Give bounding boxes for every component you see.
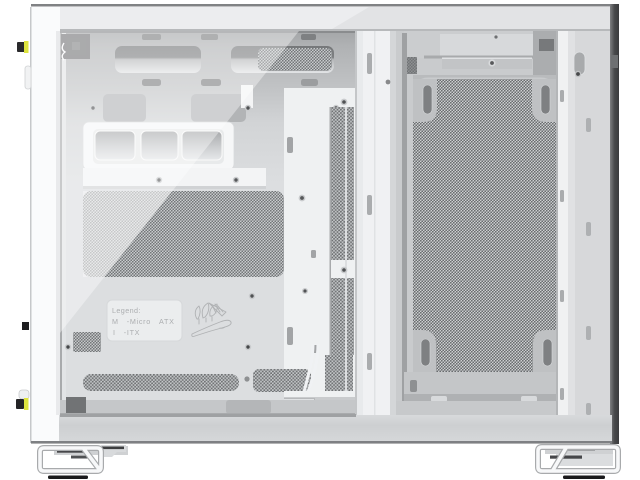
svg-text:Legend:: Legend:	[112, 306, 141, 315]
svg-text:I -ITX: I -ITX	[113, 328, 140, 337]
svg-text:M -Micro ATX: M -Micro ATX	[112, 317, 175, 326]
